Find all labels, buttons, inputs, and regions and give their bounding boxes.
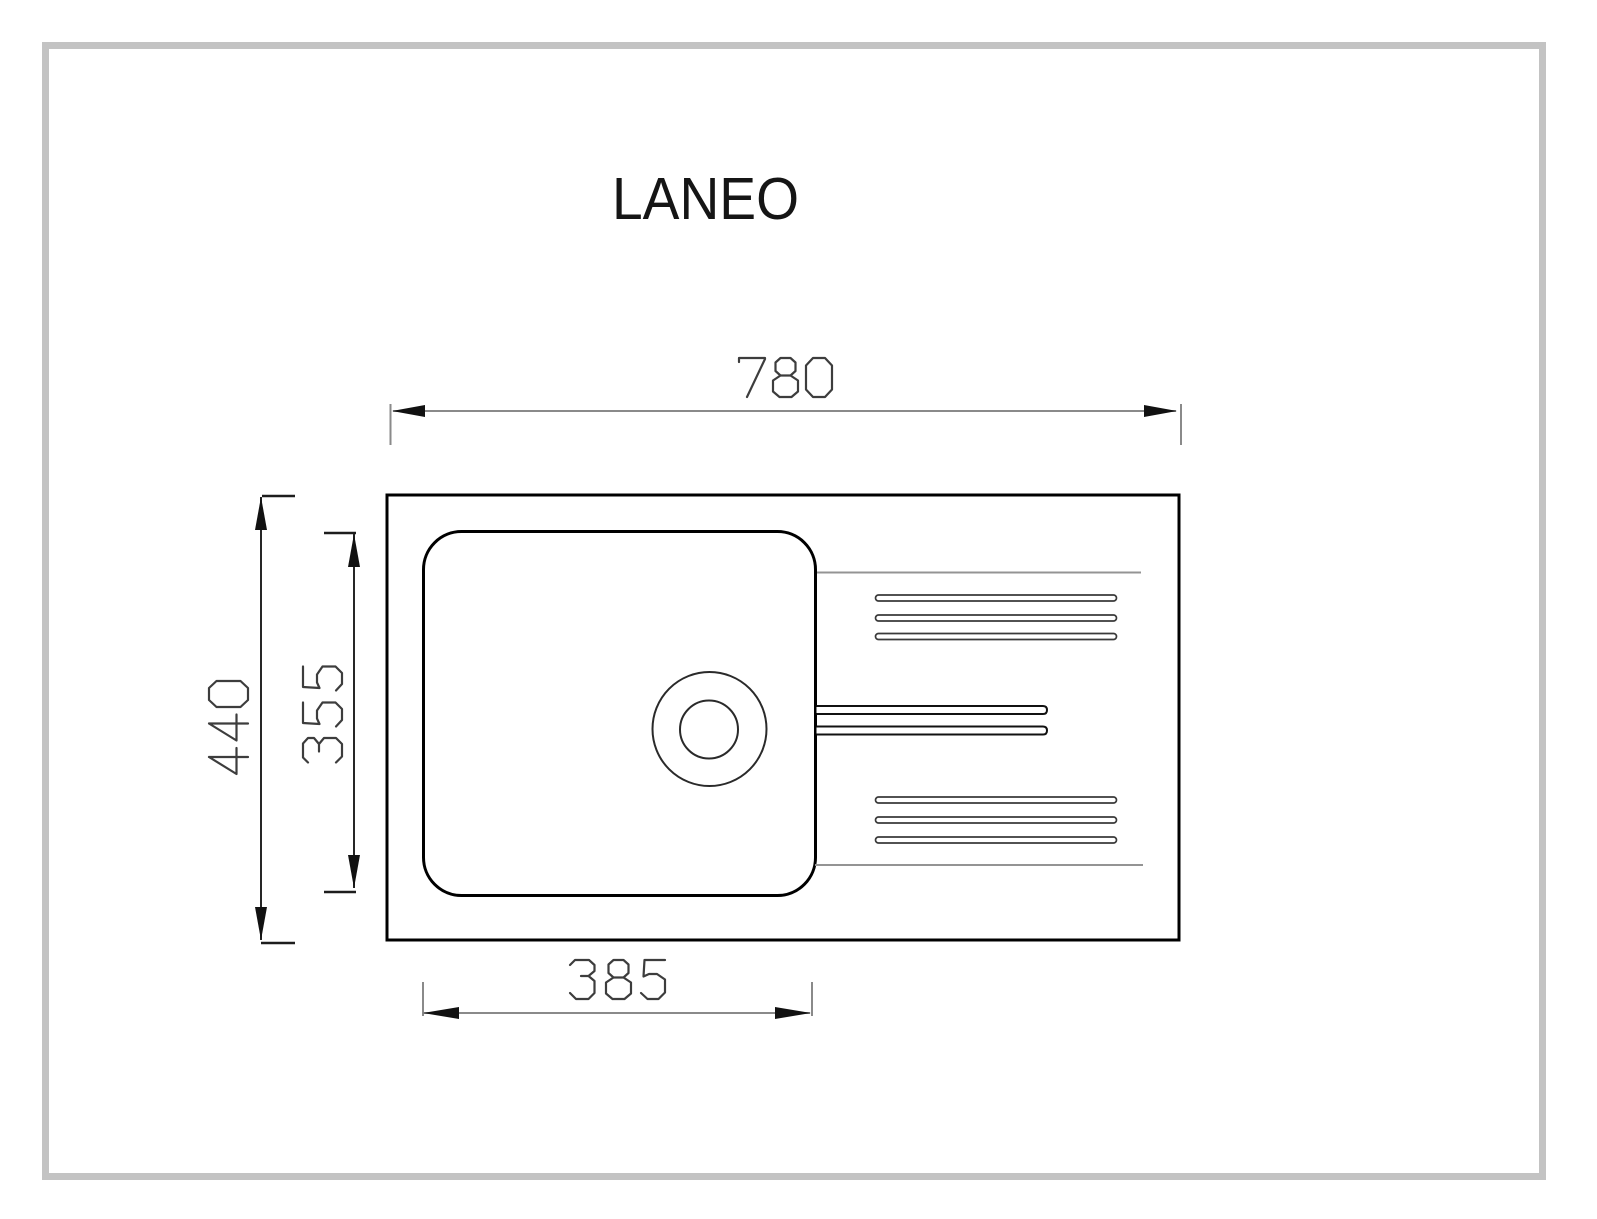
- svg-text:LANEO: LANEO: [612, 166, 799, 232]
